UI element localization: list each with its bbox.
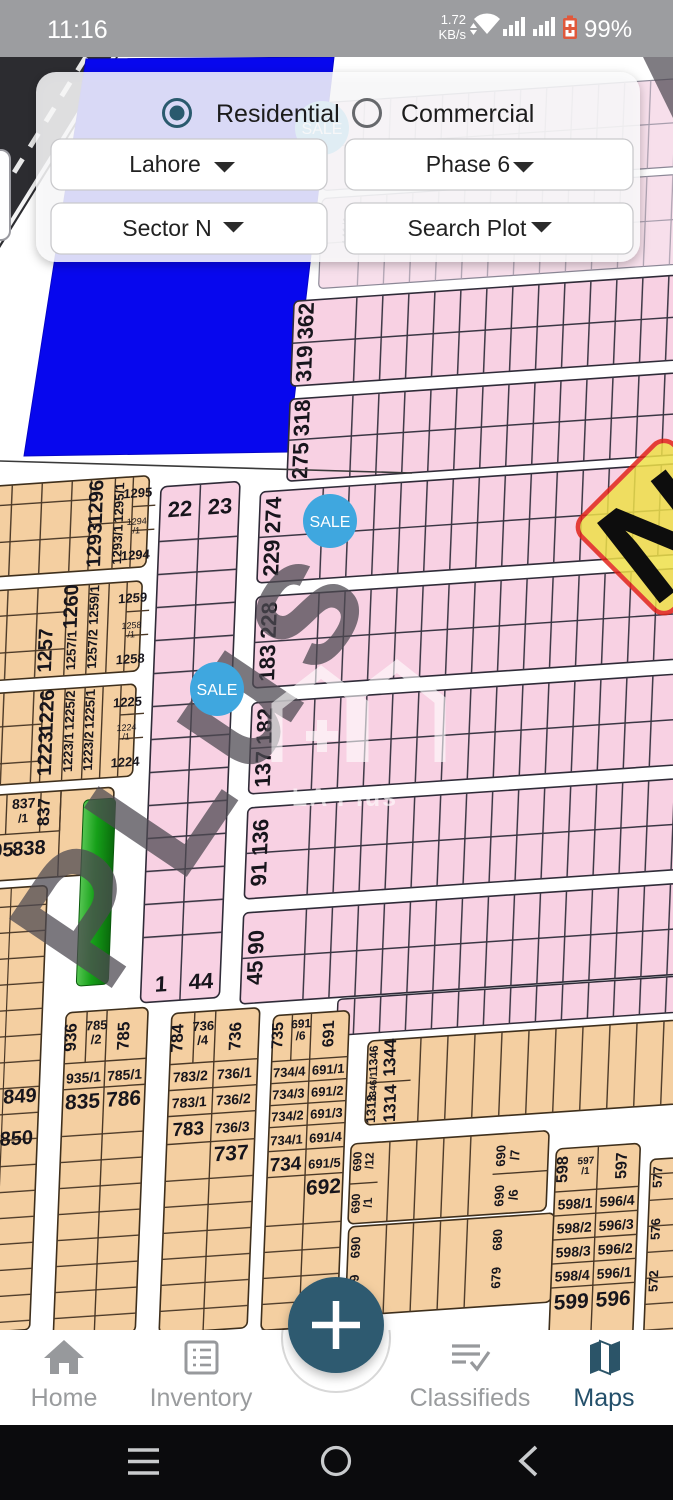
svg-text:935/1: 935/1 bbox=[66, 1068, 102, 1086]
svg-text:1260: 1260 bbox=[60, 584, 84, 630]
svg-text:785: 785 bbox=[114, 1021, 134, 1051]
svg-text:1226: 1226 bbox=[35, 689, 59, 735]
svg-text:849: 849 bbox=[3, 1085, 37, 1109]
svg-text:577: 577 bbox=[650, 1166, 666, 1189]
svg-text:680: 680 bbox=[490, 1228, 506, 1251]
svg-text:596: 596 bbox=[595, 1287, 631, 1312]
svg-text:1296: 1296 bbox=[85, 479, 109, 525]
svg-text:691/2: 691/2 bbox=[311, 1083, 344, 1100]
svg-text:/2: /2 bbox=[90, 1031, 101, 1047]
svg-text:598: 598 bbox=[553, 1156, 572, 1184]
svg-text:596/1: 596/1 bbox=[596, 1264, 632, 1282]
svg-text:1293: 1293 bbox=[83, 522, 107, 568]
svg-text:1257/1: 1257/1 bbox=[63, 630, 80, 671]
svg-text:691/5: 691/5 bbox=[308, 1155, 341, 1172]
svg-text:598/1: 598/1 bbox=[557, 1194, 593, 1212]
svg-text:45 90: 45 90 bbox=[242, 929, 269, 986]
svg-text:737: 737 bbox=[213, 1141, 249, 1166]
svg-text:599: 599 bbox=[553, 1289, 589, 1314]
svg-text:850: 850 bbox=[0, 1127, 33, 1151]
svg-text:SALE: SALE bbox=[197, 682, 238, 699]
svg-text:576: 576 bbox=[648, 1218, 664, 1241]
svg-text:99%: 99% bbox=[584, 16, 632, 43]
svg-text:Maps: Maps bbox=[573, 1384, 634, 1412]
svg-text:1259/1: 1259/1 bbox=[86, 585, 103, 626]
svg-text:Sector N: Sector N bbox=[122, 215, 211, 241]
svg-text:Residential: Residential bbox=[216, 100, 340, 128]
svg-text:835: 835 bbox=[65, 1089, 101, 1114]
svg-text:1344: 1344 bbox=[380, 1038, 401, 1078]
svg-text:596/3: 596/3 bbox=[598, 1216, 634, 1234]
svg-text:23: 23 bbox=[207, 493, 232, 520]
svg-text:1259: 1259 bbox=[118, 589, 148, 606]
svg-text:/1: /1 bbox=[132, 525, 140, 535]
svg-text:22: 22 bbox=[167, 496, 192, 523]
svg-text:1346: 1346 bbox=[366, 1045, 381, 1073]
svg-text:/6: /6 bbox=[295, 1028, 306, 1043]
svg-text:783/1: 783/1 bbox=[171, 1093, 207, 1111]
svg-text:736/2: 736/2 bbox=[215, 1090, 251, 1108]
svg-text:691/4: 691/4 bbox=[309, 1129, 343, 1146]
svg-text:Phase 6: Phase 6 bbox=[426, 151, 510, 177]
svg-text:1294: 1294 bbox=[121, 546, 151, 563]
svg-text:1225/2: 1225/2 bbox=[62, 690, 79, 731]
svg-text:/4: /4 bbox=[197, 1032, 209, 1048]
svg-text:/7: /7 bbox=[507, 1149, 522, 1161]
svg-text:/1: /1 bbox=[127, 629, 135, 639]
svg-text:690: 690 bbox=[348, 1236, 364, 1259]
svg-text:275 318: 275 318 bbox=[287, 399, 315, 480]
svg-text:1295: 1295 bbox=[123, 484, 153, 501]
svg-text:936: 936 bbox=[61, 1023, 81, 1053]
svg-text:Classifieds: Classifieds bbox=[410, 1384, 531, 1412]
svg-text:785/1: 785/1 bbox=[107, 1065, 143, 1083]
svg-text:/1: /1 bbox=[361, 1197, 375, 1208]
svg-text:692: 692 bbox=[306, 1175, 342, 1200]
svg-text:736: 736 bbox=[225, 1021, 245, 1051]
svg-text:691/1: 691/1 bbox=[312, 1061, 345, 1078]
svg-text:1257/2: 1257/2 bbox=[84, 629, 101, 670]
svg-text:11:16: 11:16 bbox=[47, 16, 108, 44]
svg-text:1313: 1313 bbox=[363, 1094, 379, 1124]
svg-text:784: 784 bbox=[167, 1023, 187, 1053]
svg-text:Home: Home bbox=[31, 1384, 98, 1412]
svg-text:734/3: 734/3 bbox=[272, 1085, 305, 1102]
svg-text:734/4: 734/4 bbox=[273, 1063, 307, 1080]
svg-text:783: 783 bbox=[172, 1118, 205, 1141]
svg-text:691: 691 bbox=[319, 1020, 338, 1048]
svg-text:734: 734 bbox=[269, 1153, 302, 1176]
svg-text:/6: /6 bbox=[505, 1189, 520, 1201]
svg-text:LA Plus: LA Plus bbox=[292, 784, 398, 812]
svg-text:/1: /1 bbox=[581, 1166, 590, 1178]
svg-text:736/1: 736/1 bbox=[216, 1064, 252, 1082]
svg-text:596/4: 596/4 bbox=[599, 1192, 635, 1210]
svg-text:SALE: SALE bbox=[310, 514, 351, 531]
svg-text:735: 735 bbox=[268, 1021, 287, 1049]
svg-text:Search Plot: Search Plot bbox=[408, 215, 528, 241]
svg-text:679: 679 bbox=[488, 1266, 504, 1289]
svg-text:1.72: 1.72 bbox=[441, 12, 466, 27]
svg-text:598/3: 598/3 bbox=[555, 1242, 591, 1260]
svg-text:598/2: 598/2 bbox=[556, 1218, 592, 1236]
svg-text:1257: 1257 bbox=[34, 627, 58, 673]
svg-text:Lahore: Lahore bbox=[129, 151, 201, 177]
svg-text:783/2: 783/2 bbox=[172, 1067, 208, 1085]
svg-text:/12: /12 bbox=[362, 1152, 377, 1170]
svg-text:691/3: 691/3 bbox=[310, 1105, 343, 1122]
svg-text:734/1: 734/1 bbox=[270, 1131, 303, 1148]
svg-text:Inventory: Inventory bbox=[150, 1384, 253, 1412]
svg-text:1223: 1223 bbox=[34, 731, 58, 777]
svg-text:736/3: 736/3 bbox=[214, 1118, 250, 1136]
svg-text:Commercial: Commercial bbox=[401, 100, 534, 128]
svg-text:734/2: 734/2 bbox=[271, 1107, 304, 1124]
svg-text:786: 786 bbox=[106, 1087, 142, 1112]
svg-text:KB/s: KB/s bbox=[439, 27, 467, 42]
svg-text:1314: 1314 bbox=[380, 1083, 401, 1123]
svg-text:837: 837 bbox=[12, 795, 36, 813]
svg-text:597: 597 bbox=[612, 1152, 631, 1180]
svg-text:596/2: 596/2 bbox=[597, 1240, 633, 1258]
svg-text:44: 44 bbox=[188, 968, 214, 995]
svg-text:598/4: 598/4 bbox=[554, 1266, 590, 1284]
svg-text:319 362: 319 362 bbox=[291, 302, 319, 383]
svg-text:572: 572 bbox=[645, 1270, 661, 1293]
